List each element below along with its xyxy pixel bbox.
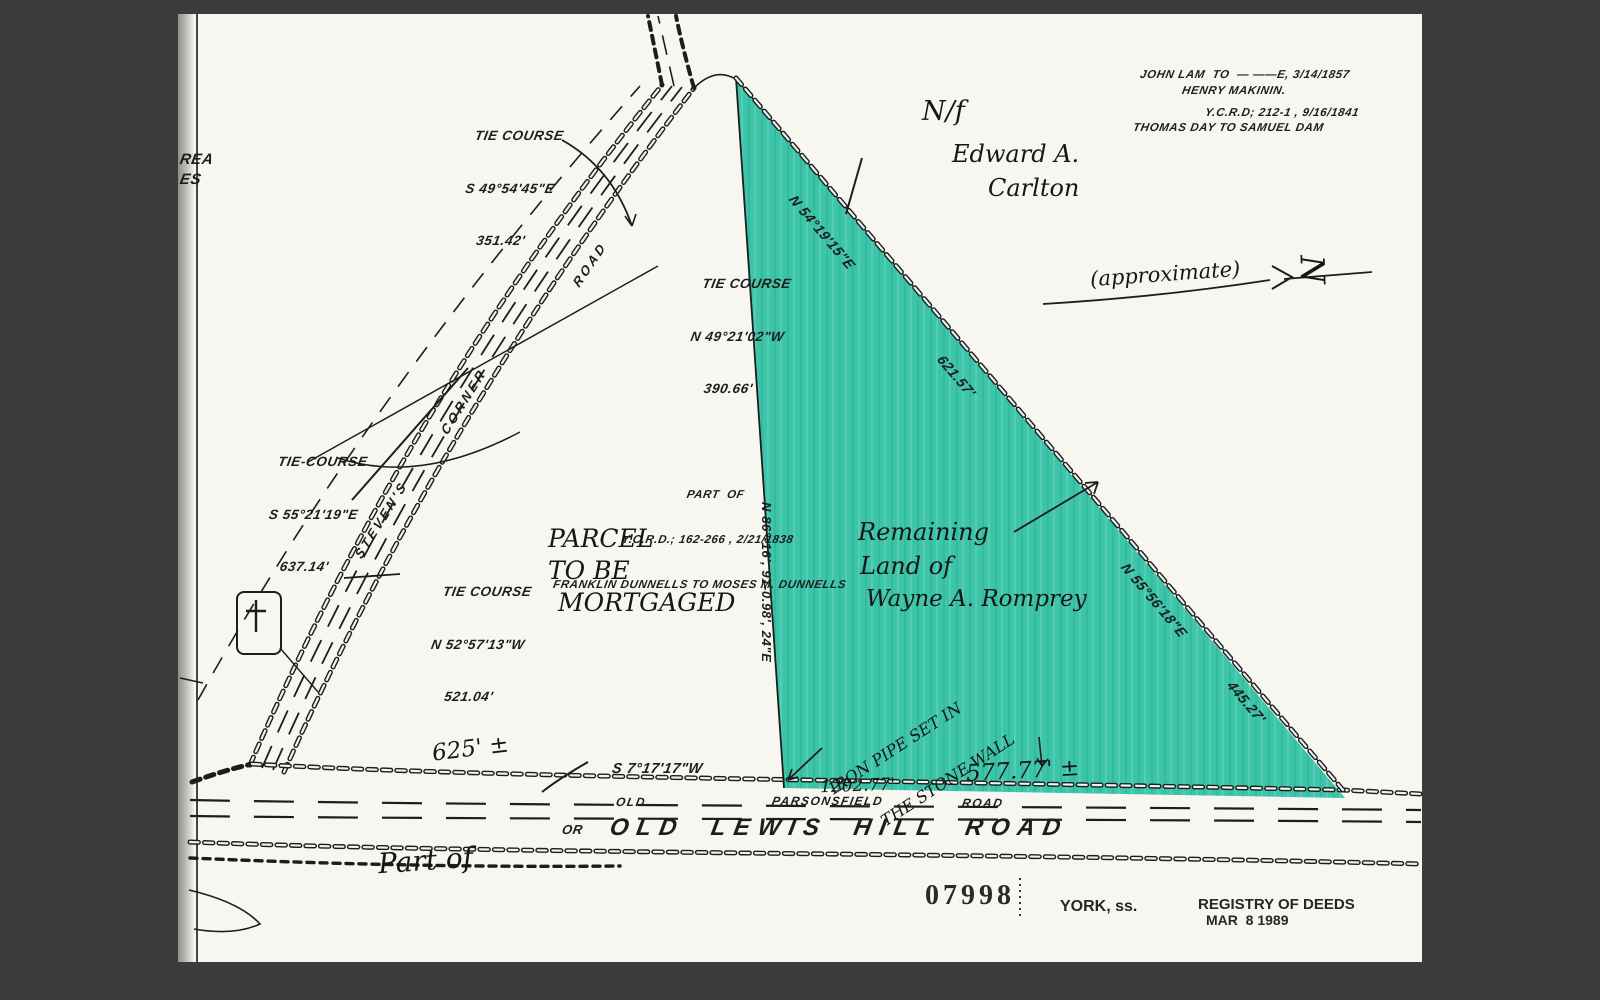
road-alt1-road: ROAD: [961, 796, 1005, 812]
abutter-name-1: Edward A.: [952, 140, 1079, 168]
bottom-left-scribble: [189, 890, 260, 932]
north-letter: N: [1292, 254, 1332, 284]
tie-course-4-bearing: N 52°57'13"W: [396, 636, 559, 654]
tie-course-3-title: TIE-COURSE: [244, 453, 402, 471]
source-deed-line-1: PART OF: [547, 488, 885, 503]
registry-stamp-line-1: REGISTRY OF DEEDS: [1198, 896, 1355, 913]
abutter-name-2: Carlton: [988, 174, 1079, 202]
parcel-label-1: PARCEL: [548, 524, 653, 553]
county-stamp: YORK, ss.: [1060, 898, 1137, 916]
survey-plan-scan: REA ES TIE COURSE S 49°54'45"E 351.42' T…: [0, 0, 1600, 1000]
parcel-label-2: TO BE: [548, 556, 630, 585]
road-alt1-parsonsfield: PARSONSFIELD: [771, 794, 885, 810]
road-alt2-or: OR: [561, 822, 585, 839]
remaining-label-3: Wayne A. Romprey: [866, 586, 1087, 612]
edge-fragment-1: REA: [178, 150, 215, 170]
remaining-label-2: Land of: [860, 552, 952, 580]
road-alt2-name: OLD LEWIS HILL ROAD: [607, 812, 1071, 843]
edge-fragment-2: ES: [178, 170, 203, 190]
edge-tick: [180, 678, 203, 683]
registry-stamp-line-2: MAR 8 1989: [1206, 912, 1288, 928]
tie-course-2-bearing: N 49°21'02"W: [653, 328, 821, 346]
bottom-bearing: S 7°17'17"W: [610, 760, 704, 779]
tie-course-1-distance: 351.42': [414, 232, 587, 250]
tie-course-1-bearing: S 49°54'45"E: [423, 180, 596, 198]
road-alt1-old: OLD: [615, 795, 648, 811]
tie-course-2: TIE COURSE N 49°21'02"W 390.66': [638, 240, 837, 433]
tie-course-2-distance: 390.66': [644, 380, 812, 398]
deed-note-2-line-1: Y.C.R.D; 212-1 , 9/16/1841: [1204, 106, 1361, 121]
abutter-nf: N/f: [922, 96, 965, 127]
plan-number-stamp: 07998: [925, 880, 1015, 912]
tie-course-1-title: TIE COURSE: [433, 127, 606, 145]
part-of-note: Part of: [377, 841, 474, 881]
tie-course-1: TIE COURSE S 49°54'45"E 351.42': [408, 92, 612, 285]
tie-course-2-title: TIE COURSE: [663, 275, 831, 293]
center-line-bearing: N 86°-16', 91-0.98', 24"E: [757, 502, 774, 662]
tie-course-3-bearing: S 55°21'19"E: [234, 506, 392, 524]
deed-note-1-line-1: JOHN LAM TO — ——E, 3/14/1857: [1139, 68, 1351, 83]
tie-course-3-distance: 637.14': [225, 558, 383, 576]
tie-course-4-distance: 521.04': [387, 688, 550, 706]
remaining-label-1: Remaining: [858, 518, 989, 546]
parcel-label-3: MORTGAGED: [558, 588, 735, 617]
deed-note-2-line-2: THOMAS DAY TO SAMUEL DAM: [1132, 121, 1325, 136]
deed-note-1-line-2: HENRY MAKININ.: [1181, 84, 1287, 99]
